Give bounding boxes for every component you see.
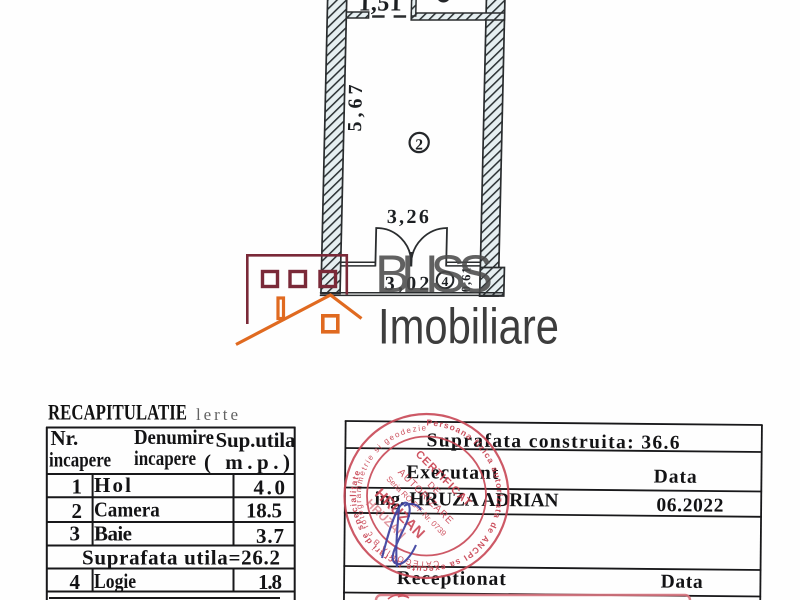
svg-text:1.8: 1.8 — [258, 570, 282, 594]
svg-text:incapere: incapere — [49, 449, 111, 472]
svg-text:Logie: Logie — [94, 571, 136, 594]
svg-text:Denumire: Denumire — [134, 426, 214, 449]
svg-text:18.5: 18.5 — [246, 499, 282, 523]
svg-text:4.0: 4.0 — [254, 476, 286, 500]
svg-text:Suprafata utila=26.2: Suprafata utila=26.2 — [82, 546, 280, 570]
svg-text:lerte: lerte — [196, 405, 238, 424]
svg-text:3: 3 — [70, 522, 81, 546]
svg-text:incapere: incapere — [134, 447, 196, 470]
svg-text:Data: Data — [654, 466, 697, 487]
svg-text:2: 2 — [415, 137, 423, 154]
svg-text:Nr.: Nr. — [51, 426, 79, 450]
svg-text:1,51: 1,51 — [358, 0, 402, 16]
svg-text:4: 4 — [70, 570, 81, 594]
svg-text:Sup.utila: Sup.utila — [216, 428, 297, 452]
svg-text:Camera: Camera — [94, 499, 160, 522]
svg-text:5,67: 5,67 — [344, 85, 367, 132]
svg-text:Hol: Hol — [94, 473, 131, 497]
svg-text:3,26: 3,26 — [387, 206, 429, 228]
svg-text:1: 1 — [72, 475, 83, 499]
svg-text:RECAPITULATIE: RECAPITULATIE — [48, 402, 187, 426]
svg-text:Baie: Baie — [94, 522, 132, 546]
svg-text:Imobiliare: Imobiliare — [378, 298, 559, 354]
svg-text:3.7: 3.7 — [256, 524, 284, 548]
svg-text:2: 2 — [72, 499, 83, 523]
svg-text:BLISS: BLISS — [375, 245, 493, 304]
svg-text:06.2022: 06.2022 — [656, 495, 723, 517]
svg-text:Data: Data — [661, 572, 703, 593]
svg-text:( m.p.): ( m.p.) — [204, 450, 290, 474]
